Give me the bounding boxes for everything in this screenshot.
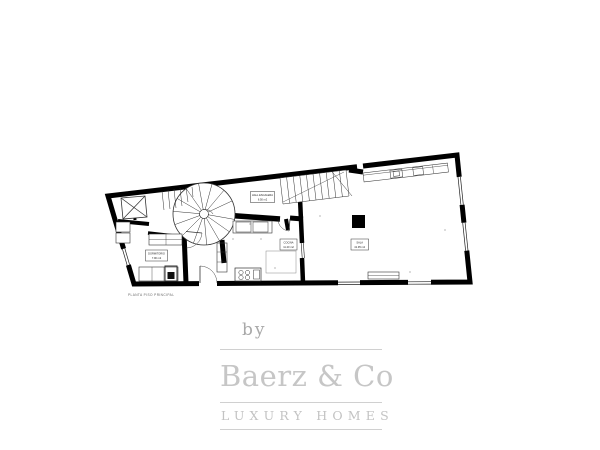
brand-tagline: LUXURY HOMES xyxy=(220,403,382,429)
brand-watermark: by Baerz & Co LUXURY HOMES xyxy=(220,320,382,430)
svg-text:HALL ESCALERA: HALL ESCALERA xyxy=(252,193,273,197)
svg-text:DORMITORIO: DORMITORIO xyxy=(148,252,165,256)
spiral-staircase xyxy=(173,183,235,245)
room-label-living: SALA 41.95 m2 xyxy=(351,239,369,250)
room-label-bedroom: DORMITORIO 7.90 m2 xyxy=(146,250,168,261)
watermark-by-label: by xyxy=(220,320,382,342)
svg-text:COCINA: COCINA xyxy=(283,241,293,245)
bedroom-closet xyxy=(149,234,182,245)
stove xyxy=(235,268,261,281)
light-shaft xyxy=(121,196,147,219)
brand-name: Baerz & Co xyxy=(220,350,382,402)
svg-text:41.95 m2: 41.95 m2 xyxy=(354,245,365,249)
room-label-kitchen: COCINA 11.20 m2 xyxy=(280,239,297,250)
column xyxy=(352,215,365,228)
bedroom-counter xyxy=(139,266,178,281)
watermark-divider-bottom xyxy=(220,429,382,430)
svg-text:7.90 m2: 7.90 m2 xyxy=(152,256,162,260)
svg-text:SALA: SALA xyxy=(356,241,363,245)
svg-text:6.50 m2: 6.50 m2 xyxy=(258,198,268,202)
svg-text:11.20 m2: 11.20 m2 xyxy=(283,245,294,249)
plan-caption: PLANTA PISO PRINCIPAL xyxy=(128,293,174,297)
radiator xyxy=(368,272,399,279)
room-label-hall: HALL ESCALERA 6.50 m2 xyxy=(251,192,275,203)
